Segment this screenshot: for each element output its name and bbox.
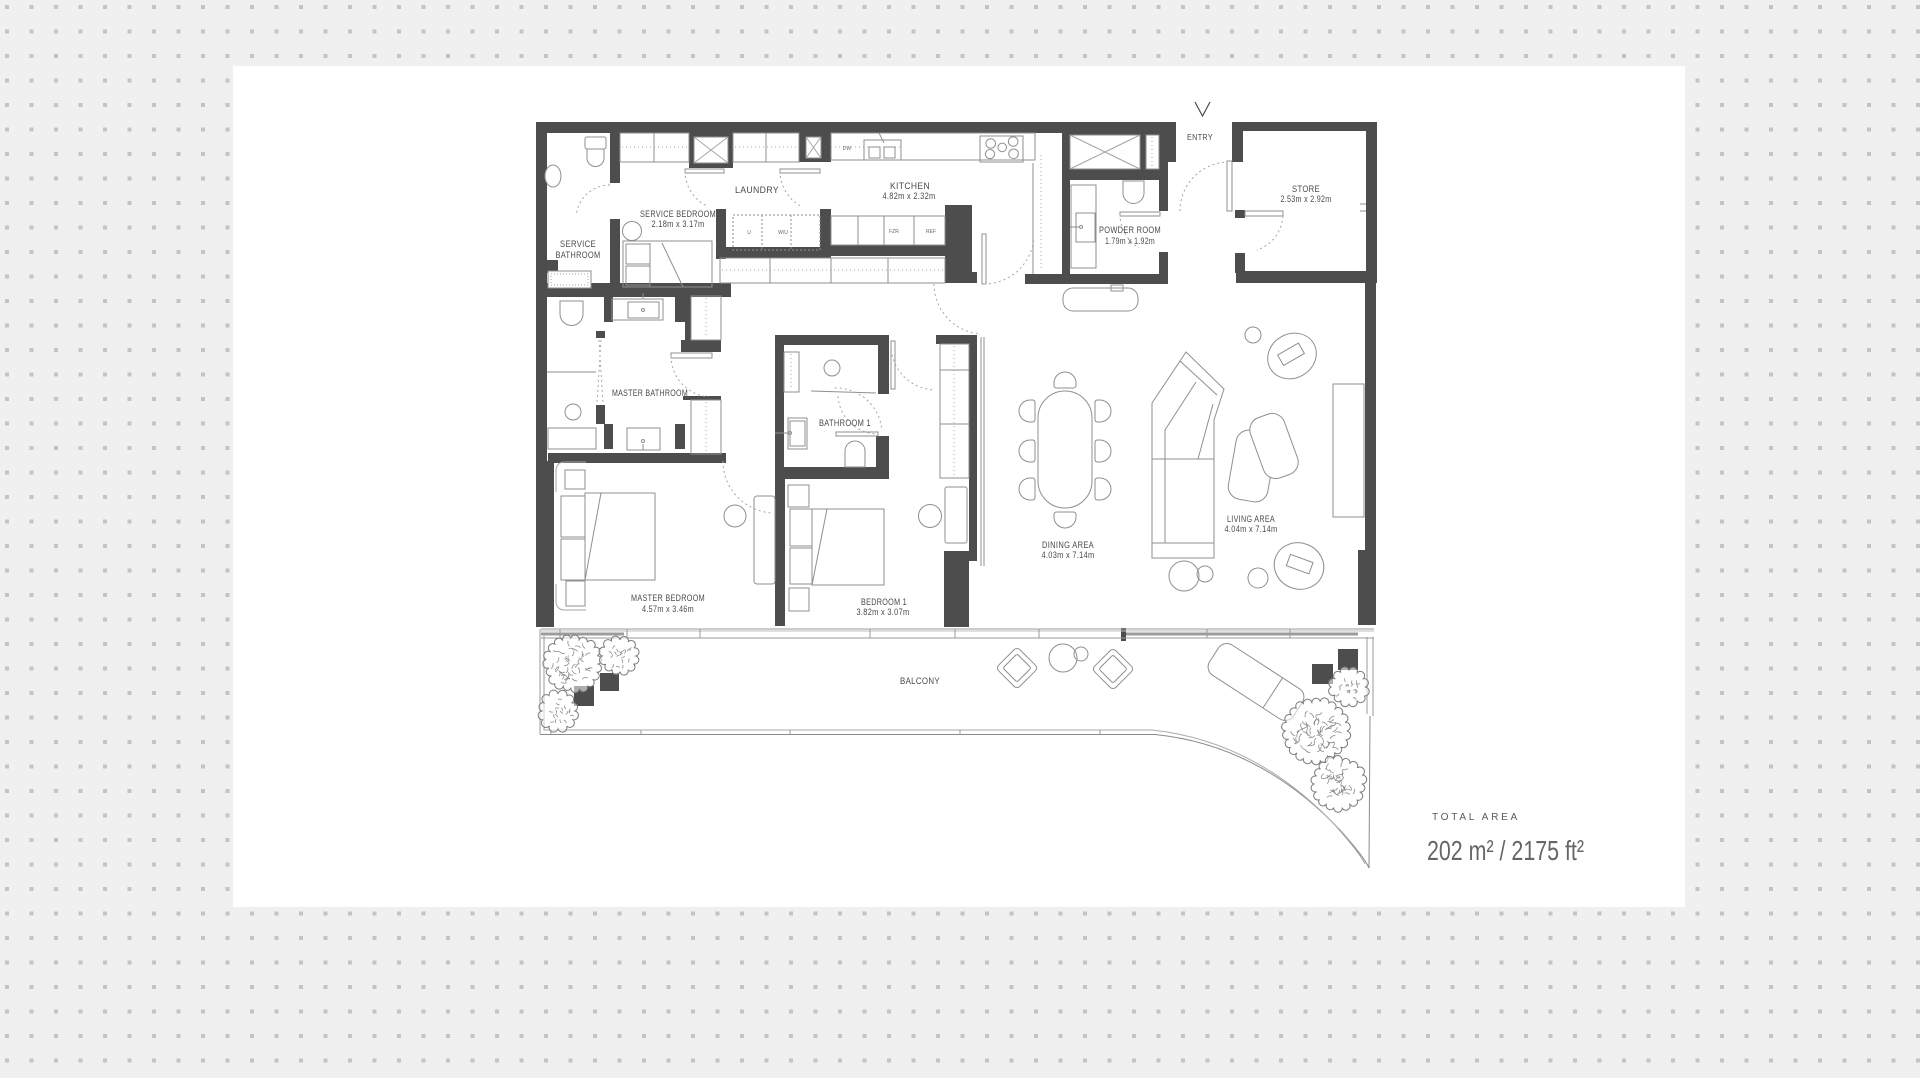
svg-text:BALCONY: BALCONY xyxy=(900,676,940,687)
svg-text:4.57m x 3.46m: 4.57m x 3.46m xyxy=(642,604,694,615)
svg-text:202 m² / 2175 ft²: 202 m² / 2175 ft² xyxy=(1427,835,1584,866)
svg-text:4.04m x 7.14m: 4.04m x 7.14m xyxy=(1225,524,1278,535)
svg-text:2.18m x 3.17m: 2.18m x 3.17m xyxy=(652,219,705,230)
svg-text:W/U: W/U xyxy=(778,230,788,236)
svg-text:ENTRY: ENTRY xyxy=(1187,132,1213,142)
svg-text:MASTER BATHROOM: MASTER BATHROOM xyxy=(612,388,688,399)
svg-text:4.03m x 7.14m: 4.03m x 7.14m xyxy=(1042,550,1095,561)
svg-text:FZR: FZR xyxy=(889,229,899,235)
svg-text:POWDER ROOM: POWDER ROOM xyxy=(1099,225,1161,236)
svg-text:U: U xyxy=(747,230,751,236)
svg-text:BATHROOM: BATHROOM xyxy=(556,250,601,261)
svg-text:1.79m x 1.92m: 1.79m x 1.92m xyxy=(1105,236,1155,247)
svg-text:4.82m x 2.32m: 4.82m x 2.32m xyxy=(883,191,936,202)
svg-text:SERVICE: SERVICE xyxy=(560,239,596,250)
svg-text:3.82m x 3.07m: 3.82m x 3.07m xyxy=(857,607,910,618)
svg-text:TOTAL AREA: TOTAL AREA xyxy=(1432,811,1520,823)
svg-text:LAUNDRY: LAUNDRY xyxy=(735,185,779,196)
svg-text:DW: DW xyxy=(843,146,852,152)
svg-text:2.53m x 2.92m: 2.53m x 2.92m xyxy=(1281,194,1332,205)
svg-text:REF: REF xyxy=(926,229,936,235)
svg-text:BATHROOM 1: BATHROOM 1 xyxy=(819,418,871,429)
svg-text:MASTER BEDROOM: MASTER BEDROOM xyxy=(631,593,705,604)
